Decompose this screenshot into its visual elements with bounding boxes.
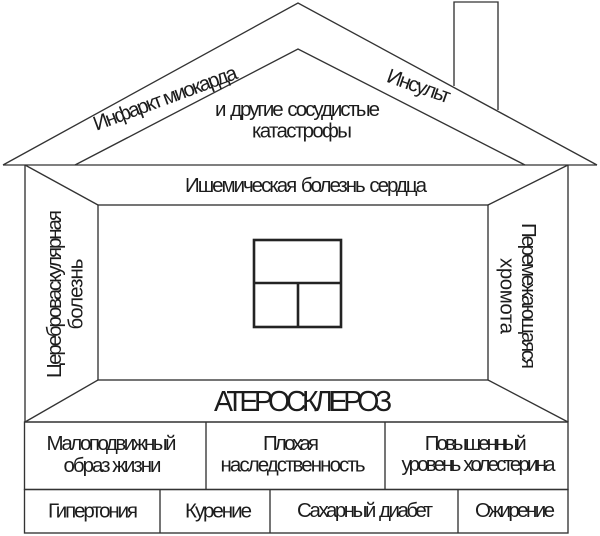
svg-text:уровень холестерина: уровень холестерина [402,453,557,476]
svg-text:образ жизни: образ жизни [64,454,162,477]
svg-text:Малоподвижный: Малоподвижный [47,432,177,455]
svg-text:катастрофы: катастрофы [252,120,352,143]
svg-text:наследственность: наследственность [221,454,366,477]
svg-text:Повышенный: Повышенный [425,432,527,455]
svg-text:Курение: Курение [185,500,252,523]
svg-text:Сахарный диабет: Сахарный диабет [297,499,434,522]
svg-text:Ишемическая болезнь сердца: Ишемическая болезнь сердца [185,174,428,197]
svg-text:Инсульт: Инсульт [384,65,454,109]
svg-text:Ожирение: Ожирение [475,499,555,522]
svg-text:и другие сосудистые: и другие сосудистые [215,98,380,121]
svg-text:Цереброваскулярнаяболезнь: Цереброваскулярнаяболезнь [43,210,88,378]
svg-text:АТЕРОСКЛЕРОЗ: АТЕРОСКЛЕРОЗ [214,386,394,418]
svg-text:Плохая: Плохая [263,432,319,455]
svg-text:Гипертония: Гипертония [48,500,138,523]
svg-text:Перемежающаясяхромота: Перемежающаясяхромота [496,223,541,369]
